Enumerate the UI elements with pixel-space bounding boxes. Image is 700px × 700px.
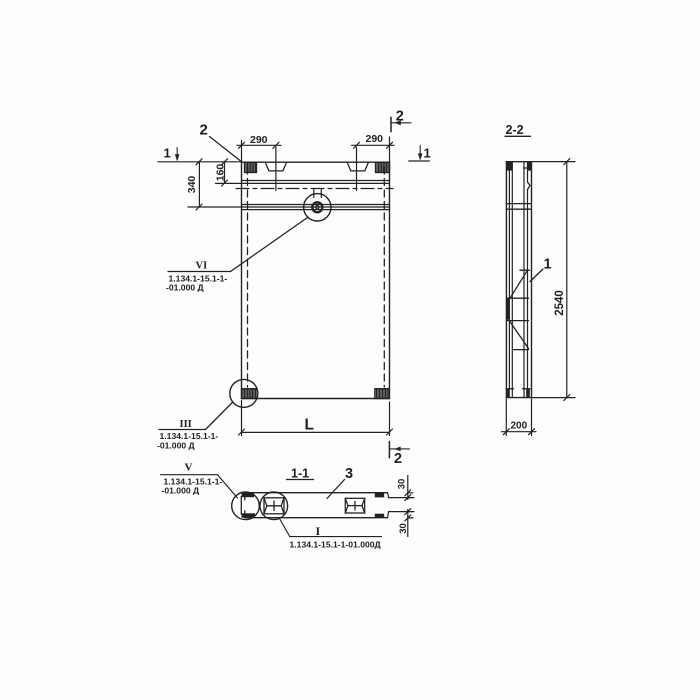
svg-text:160: 160	[214, 164, 226, 182]
svg-text:2: 2	[200, 122, 208, 139]
svg-text:VI: VI	[196, 261, 208, 272]
svg-text:1: 1	[164, 146, 171, 161]
svg-text:290: 290	[366, 133, 384, 145]
svg-text:III: III	[180, 419, 192, 430]
svg-text:-01.000 Д: -01.000 Д	[157, 441, 195, 451]
svg-text:L: L	[305, 417, 314, 434]
svg-text:3: 3	[345, 466, 353, 482]
svg-text:340: 340	[186, 176, 198, 194]
svg-text:V: V	[185, 462, 193, 474]
svg-text:1: 1	[544, 257, 552, 273]
svg-text:1.134.1-15.1-1-01.000Д: 1.134.1-15.1-1-01.000Д	[290, 540, 381, 550]
svg-text:1: 1	[424, 146, 431, 161]
svg-text:2: 2	[394, 451, 402, 467]
svg-text:1-1: 1-1	[291, 467, 309, 481]
svg-text:30: 30	[396, 479, 407, 490]
svg-text:I: I	[316, 524, 321, 538]
svg-text:-01.000 Д: -01.000 Д	[162, 486, 200, 496]
svg-text:1.134.1-15.1-1-: 1.134.1-15.1-1-	[160, 431, 219, 441]
svg-text:2-2: 2-2	[506, 123, 524, 137]
svg-text:2: 2	[396, 109, 404, 125]
svg-text:2540: 2540	[554, 290, 566, 316]
svg-text:290: 290	[250, 134, 268, 146]
svg-text:30: 30	[398, 523, 409, 534]
svg-text:200: 200	[511, 421, 528, 432]
svg-text:-01.000 Д: -01.000 Д	[166, 283, 204, 293]
